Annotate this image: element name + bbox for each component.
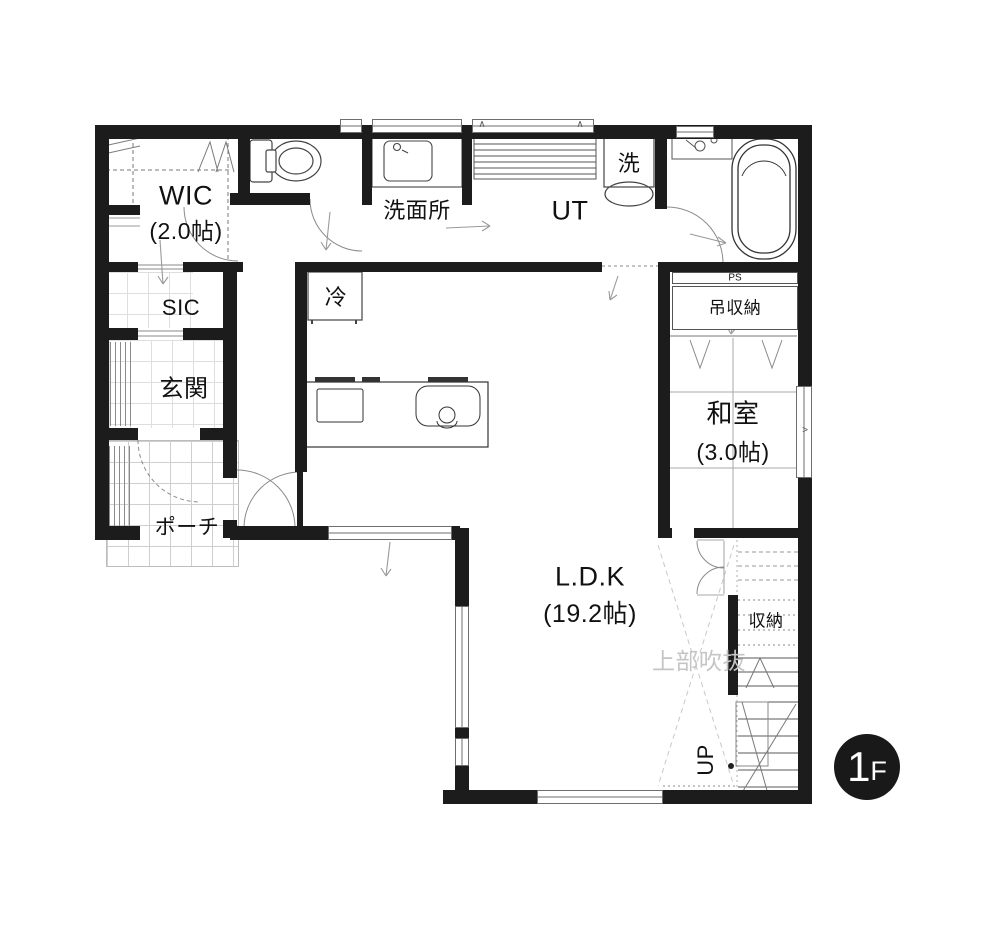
wall-genkan-right-a <box>223 328 237 478</box>
wall-kitchen-west <box>295 262 307 472</box>
stair-start-dot <box>728 763 734 769</box>
wall-washitsu-left <box>658 262 670 538</box>
label-void-above: 上部吹抜 <box>652 642 746 676</box>
wall-genkan-bottom-a <box>95 428 138 440</box>
wall-toilet-right <box>362 127 372 205</box>
room-label-wic: WIC <box>159 181 213 212</box>
room-size-ldk: (19.2帖) <box>543 594 637 630</box>
high-window-marker-icon: ∧ <box>478 119 485 130</box>
wall-washroom-ut <box>462 127 472 205</box>
label-pipe-space: PS <box>728 273 741 284</box>
tatami-lines <box>670 336 797 528</box>
entry-door-arc <box>138 440 200 502</box>
floor-badge: 1F <box>834 734 900 800</box>
window-chevron-icon: > <box>802 425 808 436</box>
fixture-label-washer: 洗 <box>618 146 641 178</box>
wall-genkan-bottom-b <box>200 428 237 440</box>
window-washroom <box>372 119 462 133</box>
washitsu-bottom-gap <box>672 528 694 538</box>
kitchen-island-icon <box>302 377 488 447</box>
window-top-small <box>340 119 362 133</box>
window-bath <box>676 126 714 138</box>
window-ldk-west-1 <box>455 606 469 728</box>
floor-badge-number: 1 <box>847 746 870 788</box>
window-ldk-south <box>537 790 663 804</box>
door-leaf-hall-ldk <box>297 472 303 528</box>
room-label-sic: SIC <box>162 295 200 321</box>
wall-wic-shelf <box>106 205 140 215</box>
label-stairs-up: UP <box>693 744 719 776</box>
wall-wic-sic-a <box>106 262 138 272</box>
toilet-door-arc <box>310 199 362 251</box>
hall-ldk-door-arc <box>244 472 300 528</box>
wall-wic-sic-b <box>183 262 243 272</box>
room-label-genkan: 玄関 <box>160 369 209 404</box>
fixture-label-fridge: 冷 <box>325 280 348 312</box>
room-label-hanging-storage: 吊収納 <box>709 294 762 319</box>
room-label-washitsu: 和室 <box>706 394 759 431</box>
wall-ut-bath <box>655 127 667 209</box>
vanity-sink-icon <box>372 135 462 187</box>
wall-porch-southwest <box>95 526 140 540</box>
room-size-wic: (2.0帖) <box>149 212 222 246</box>
floor-badge-letter: F <box>870 758 887 785</box>
room-size-washitsu: (3.0帖) <box>696 433 769 467</box>
window-hall-south <box>328 526 452 540</box>
wall-bath-bottom <box>662 262 798 272</box>
wall-sic-bottom-a <box>95 328 138 340</box>
porch-hall-door-arc <box>237 470 295 528</box>
high-window-marker-icon: ∧ <box>576 119 583 130</box>
toilet-icon <box>250 140 321 182</box>
bathtub-icon <box>732 139 796 259</box>
room-label-ldk: L.D.K <box>555 562 625 593</box>
window-ldk-west-2 <box>455 738 469 766</box>
room-label-washroom: 洗面所 <box>383 193 451 225</box>
room-label-porch: ポーチ <box>155 511 220 541</box>
wall-toilet-bottom <box>230 193 310 205</box>
wall-sic-right <box>223 272 237 328</box>
room-label-storage: 収納 <box>749 607 784 632</box>
drying-rack-icon <box>474 137 596 179</box>
wall-genkan-right-b <box>223 520 237 538</box>
storage-double-door-arcs <box>697 541 724 594</box>
wall-mid-horizontal <box>295 262 602 272</box>
floor-plan: ∧ ∧ > WIC (2.0帖) SIC 玄関 ポーチ 洗面所 UT 洗 冷 P… <box>0 0 1000 933</box>
room-label-ut: UT <box>552 196 589 227</box>
